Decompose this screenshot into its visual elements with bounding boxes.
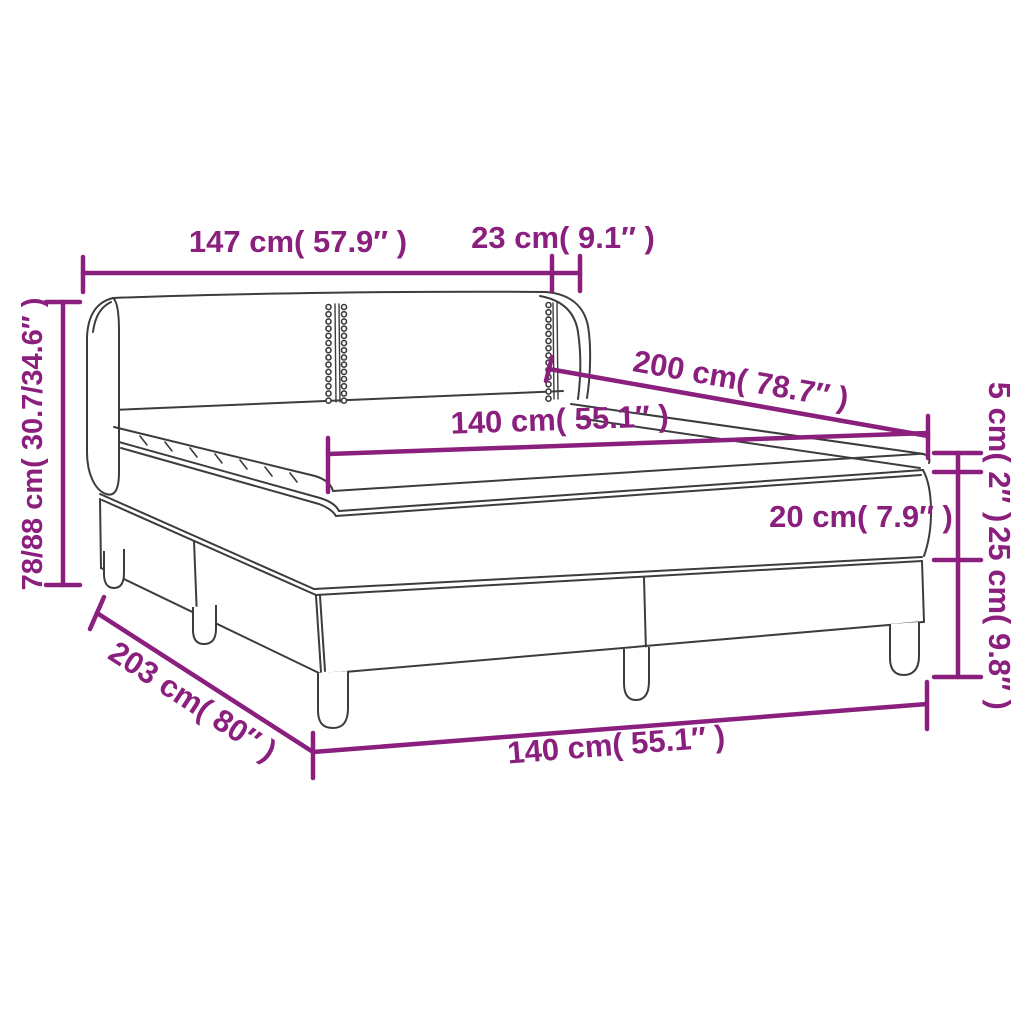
dim-line-width140-mid [328,433,928,454]
base-top-foot-edge [314,557,922,595]
label-wing-depth: 23 cm( 9.1″ ) [471,220,655,255]
dimension-diagram: 147 cm( 57.9″ ) 23 cm( 9.1″ ) 78/88 cm( … [0,0,1024,1024]
topper-left-seam-lower [121,448,336,516]
base-front-corner-edge [316,596,325,672]
label-mattress-height: 20 cm( 7.9″ ) [769,499,953,534]
bed-dimension-drawing: 147 cm( 57.9″ ) 23 cm( 9.1″ ) 78/88 cm( … [0,0,1024,1024]
label-base-length: 203 cm( 80″ ) [103,634,283,768]
leg-foot-right [890,622,919,675]
label-headboard-width: 147 cm( 57.9″ ) [189,224,407,259]
headboard-left-wing [87,298,119,495]
label-mattress-width: 140 cm( 55.1″ ) [450,398,669,441]
headboard-top-edge [113,292,546,298]
label-topper-height: 5 cm( 2″ ) [982,382,1017,523]
topper-foot-top-edge [333,454,929,491]
leg-mid-foot [624,647,649,700]
label-base-height: 25 cm( 9.8″ ) [982,526,1017,710]
base-left-seam [194,541,197,617]
label-total-height: 78/88 cm( 30.7/34.6″ ) [17,298,49,591]
dim-tick-length203-start [90,597,104,629]
leg-mid-left [193,605,216,644]
base-top-left-edge [100,494,316,595]
base-bottom-foot-edge [322,622,923,674]
base-head-left-edge [100,499,101,568]
base-right-edge [922,561,924,622]
leg-foot-left [318,671,348,728]
dimension-labels: 147 cm( 57.9″ ) 23 cm( 9.1″ ) 78/88 cm( … [17,220,1017,771]
headboard-stud-rows [329,303,559,402]
base-foot-seam [644,578,646,652]
label-base-width: 140 cm( 55.1″ ) [506,719,726,771]
headboard [87,292,590,495]
headboard-seam-lines [335,303,558,402]
leg-head-left [104,549,124,588]
topper-left-top-edge [114,427,333,491]
